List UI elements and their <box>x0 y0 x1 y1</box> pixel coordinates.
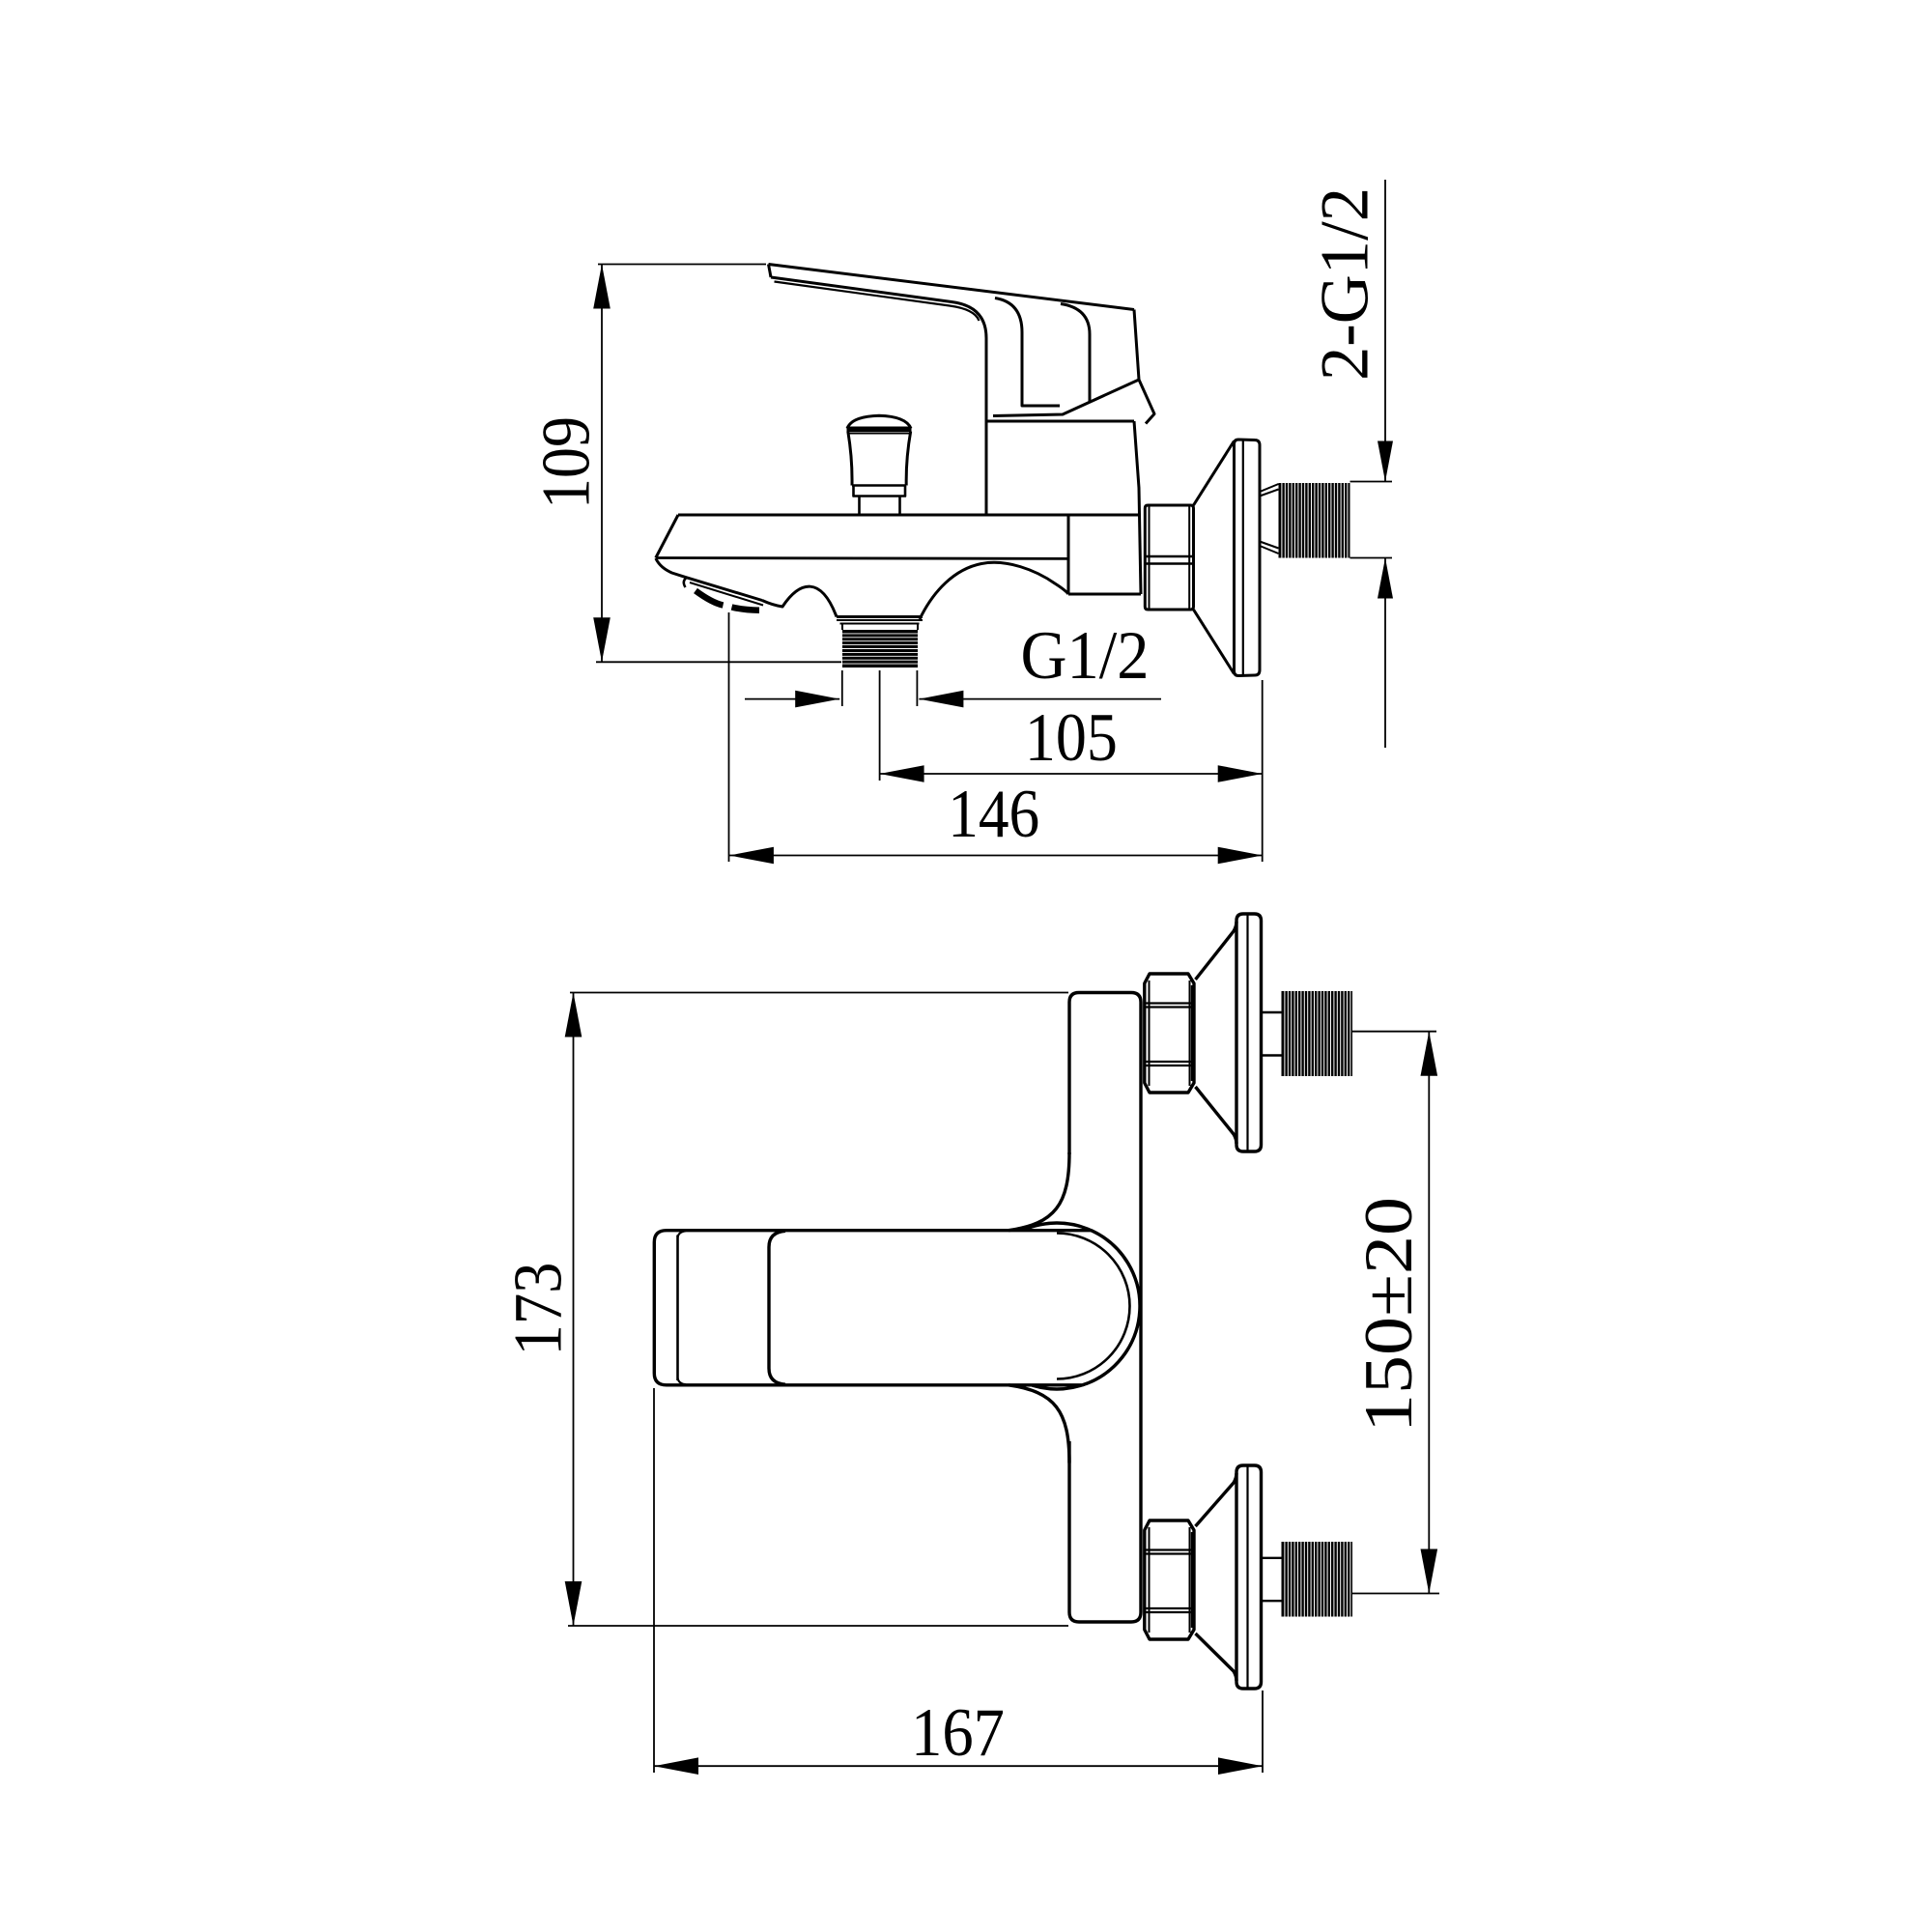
svg-text:146: 146 <box>948 777 1039 852</box>
svg-text:2-G1/2: 2-G1/2 <box>1308 187 1383 381</box>
svg-text:173: 173 <box>501 1263 577 1356</box>
svg-text:167: 167 <box>911 1695 1005 1771</box>
svg-text:109: 109 <box>529 416 605 509</box>
svg-text:G1/2: G1/2 <box>1021 618 1150 694</box>
svg-text:105: 105 <box>1025 700 1118 776</box>
svg-text:150±20: 150±20 <box>1351 1197 1427 1433</box>
